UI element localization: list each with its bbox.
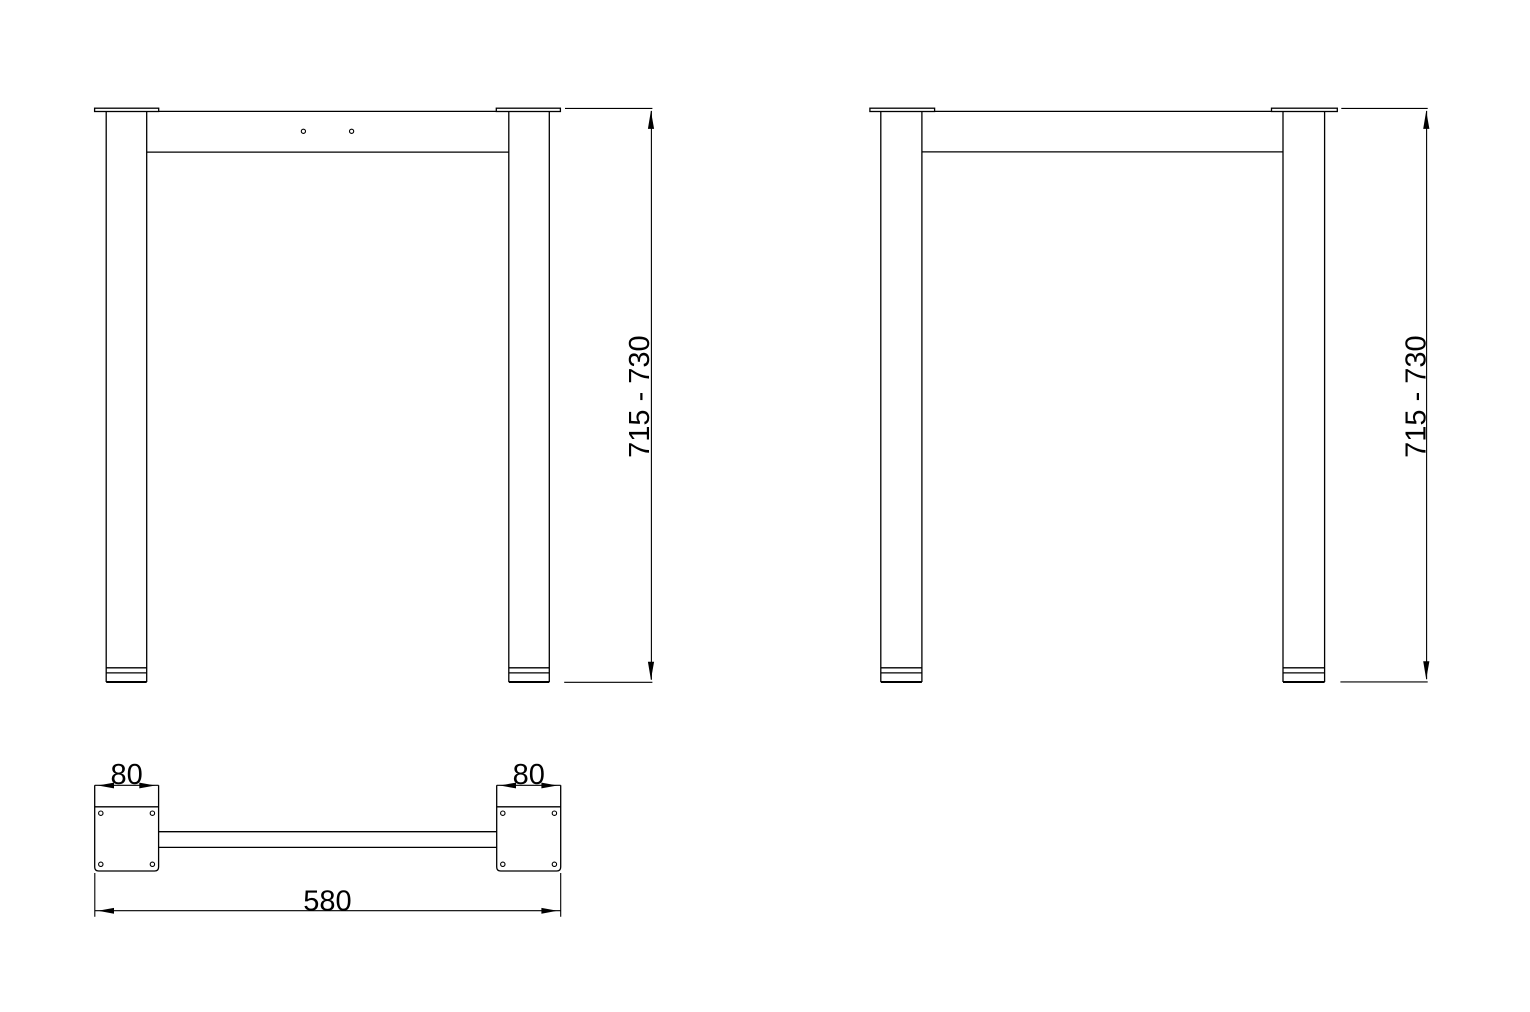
svg-text:80: 80 — [110, 759, 142, 791]
svg-text:580: 580 — [303, 885, 351, 917]
svg-text:715 - 730: 715 - 730 — [624, 335, 656, 458]
svg-text:80: 80 — [513, 759, 545, 791]
svg-text:715 - 730: 715 - 730 — [1400, 335, 1432, 458]
